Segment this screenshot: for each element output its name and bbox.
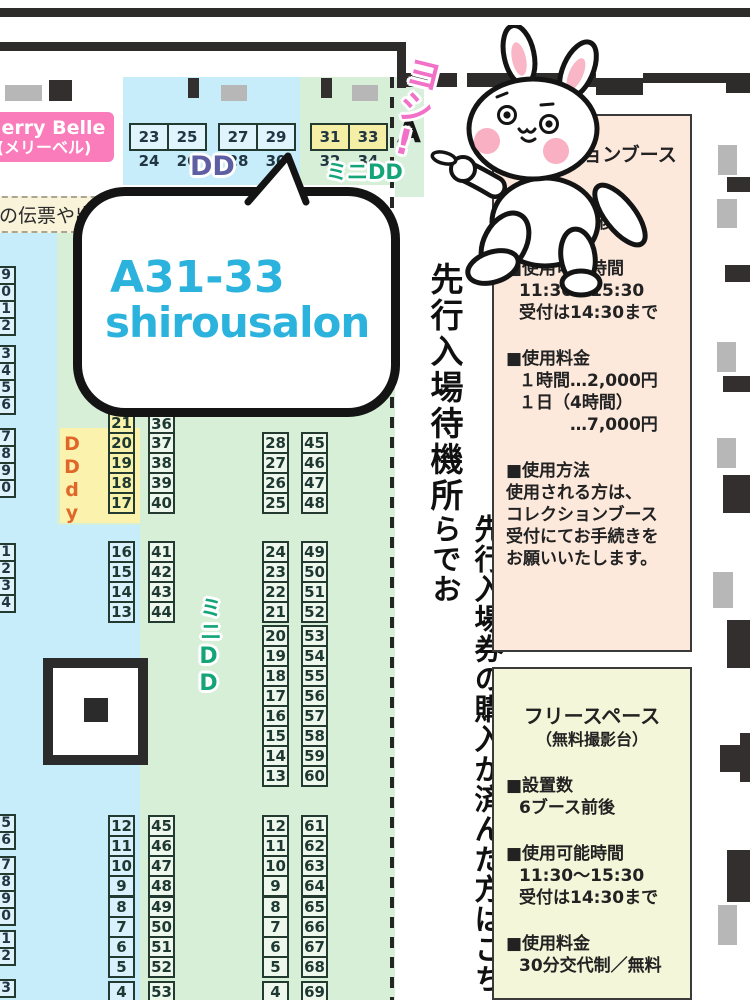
booth-cell: 10 <box>264 857 287 875</box>
edge-booth-column: 12 <box>0 930 16 966</box>
pillar-block <box>723 475 750 513</box>
booth-strip: 27 2829 30 <box>218 123 296 151</box>
booth-cell: 5 <box>110 956 133 976</box>
booth-cell: 53 <box>303 627 326 645</box>
floor-pillar <box>43 658 148 765</box>
panel-section: ■使用可能時間11:30～15:30受付は14:30まで <box>494 843 690 909</box>
booth-column: 45464748 <box>301 432 328 514</box>
booth-cell: 4 <box>110 983 133 1000</box>
booth-strip: 23 2425 26 <box>129 123 207 151</box>
booth-cell: 59 <box>303 747 326 765</box>
booth-column: 69 <box>301 981 328 1000</box>
panel-section-line: お願いいたします。 <box>506 548 680 570</box>
booth-column: 53545556 <box>301 625 328 707</box>
booth-cell: 7 <box>0 858 14 873</box>
edge-booth-column: 3 <box>0 979 16 998</box>
booth-column: 8765 <box>108 896 135 978</box>
panel-section-heading: ■使用可能時間 <box>506 843 680 865</box>
booth-cell: 50 <box>303 561 326 581</box>
booth-cell: 36 <box>150 415 173 433</box>
panel-section: ■設置数6ブース前後 <box>494 775 690 819</box>
booth-cell: 50 <box>150 916 173 936</box>
booth-cell: 22 <box>264 583 287 601</box>
booth-cell: 6 <box>264 938 287 956</box>
booth-cell: 43 <box>150 583 173 601</box>
rabbit-illustration <box>425 25 660 300</box>
pillar-block <box>723 376 750 392</box>
booth-cell: 24 <box>264 543 287 561</box>
booth-column: 8765 <box>262 896 289 978</box>
booth-cell: 6 <box>110 938 133 956</box>
panel-section: ■使用料金１時間…2,000円１日（4時間） …7,000円 <box>494 348 690 436</box>
booth-cell: 45 <box>303 434 326 452</box>
booth-cell: 62 <box>303 835 326 855</box>
ddy-zone-label: DDdy <box>61 433 83 525</box>
booth-cell: 21 <box>264 601 287 621</box>
booth-cell: 5 <box>264 956 287 976</box>
booth-cell: 9 <box>264 875 287 895</box>
booth-cell: 56 <box>303 685 326 705</box>
booth-cell: 47 <box>303 474 326 492</box>
panel-section-heading: ■使用料金 <box>506 933 680 955</box>
bubble-booth-number: A31-33 <box>110 252 285 303</box>
booth-cell: 4 <box>0 362 14 379</box>
panel-section-line: 30分交代制／無料 <box>506 955 680 977</box>
booth-cell: 41 <box>150 543 173 561</box>
wall-top-2 <box>0 42 406 51</box>
booth-cell: 4 <box>264 983 287 1000</box>
edge-booth-column: 1234 <box>0 543 16 613</box>
booth-column: 4 <box>262 981 289 1000</box>
panel-section-line: １時間…2,000円 <box>506 370 680 392</box>
table-block <box>717 199 737 228</box>
booth-cell: 51 <box>150 938 173 956</box>
booth-cell: 16 <box>110 543 133 561</box>
rabbit-mascot <box>425 25 660 304</box>
booth-cell: 18 <box>110 474 133 492</box>
booth-column: 49505152 <box>148 896 175 978</box>
booth-cell: 0 <box>0 479 14 496</box>
bubble-circle-name: shirousalon <box>105 298 369 347</box>
booth-cell: 25 26 <box>167 125 205 149</box>
merry-belle-name: Merry Belle <box>0 118 114 139</box>
booth-cell: 4 <box>0 594 14 611</box>
merry-belle-reading: (メリーベル) <box>0 139 114 157</box>
booth-cell: 52 <box>150 956 173 976</box>
venue-map-page: の伝票や出展 Merry Belle (メリーベル) DD ミニDD A ミニD… <box>0 0 750 1000</box>
pillar-block <box>49 80 72 101</box>
free-space-panel-title: フリースペース <box>494 705 690 727</box>
booth-cell: 52 <box>303 601 326 621</box>
mini-dd-vertical-label: ミニDD <box>192 596 224 698</box>
table-block <box>717 342 736 372</box>
booth-column: 16151413 <box>108 541 135 623</box>
speech-bubble-tail <box>240 150 316 212</box>
booth-cell: 48 <box>150 875 173 895</box>
booth-cell: 15 <box>110 561 133 581</box>
booth-cell: 63 <box>303 857 326 875</box>
booth-column: 4 <box>108 981 135 1000</box>
booth-column: 53 <box>148 981 175 1000</box>
booth-cell: 39 <box>150 474 173 492</box>
booth-cell: 3 <box>0 577 14 594</box>
table-block <box>5 85 42 101</box>
booth-cell: 2 <box>0 947 14 964</box>
booth-column: 65666768 <box>301 896 328 978</box>
booth-column: 20191817 <box>262 625 289 707</box>
booth-cell: 14 <box>110 583 133 601</box>
booth-column: 61626364 <box>301 815 328 897</box>
booth-column: 24232221 <box>262 541 289 623</box>
booth-cell: 61 <box>303 817 326 835</box>
pillar-block <box>720 745 740 772</box>
panel-section-heading: ■使用方法 <box>506 460 680 482</box>
booth-cell: 65 <box>303 898 326 916</box>
edge-booth-column: 56 <box>0 814 16 850</box>
booth-cell: 5 <box>0 379 14 396</box>
free-space-panel: フリースペース （無料撮影台） ■設置数6ブース前後■使用可能時間11:30～1… <box>492 667 692 1000</box>
pillar-block <box>188 78 199 98</box>
booth-cell: 20 <box>110 434 133 452</box>
booth-cell: 6 <box>0 831 14 848</box>
dd-zone-label: DD <box>190 151 235 182</box>
booth-cell: 44 <box>150 601 173 621</box>
panel-section-line: 6ブース前後 <box>506 797 680 819</box>
booth-cell: 8 <box>0 445 14 462</box>
booth-cell: 1 <box>0 300 14 317</box>
panel-section-line: 受付にてお手続きを <box>506 526 680 548</box>
booth-column: 37383940 <box>148 432 175 514</box>
booth-cell: 68 <box>303 956 326 976</box>
booth-column: 1211109 <box>108 815 135 897</box>
booth-cell: 15 <box>264 725 287 745</box>
booth-cell: 48 <box>303 492 326 512</box>
table-block <box>717 438 736 468</box>
booth-cell: 45 <box>150 817 173 835</box>
merry-belle-sign: Merry Belle (メリーベル) <box>0 112 114 162</box>
panel-section-line: 受付は14:30まで <box>506 887 680 909</box>
booth-cell: 27 <box>264 452 287 472</box>
table-block <box>718 905 737 945</box>
panel-section-line: コレクションブース <box>506 504 680 526</box>
table-block <box>718 145 737 175</box>
edge-booth-column: 7890 <box>0 428 16 498</box>
panel-section: ■使用方法使用される方は、コレクションブース受付にてお手続きをお願いいたします。 <box>494 460 690 570</box>
booth-cell: 8 <box>110 898 133 916</box>
booth-cell: 3 <box>0 347 14 362</box>
panel-section-line: …7,000円 <box>506 414 680 436</box>
free-space-panel-subtitle: （無料撮影台） <box>494 729 690 751</box>
pillar-block <box>740 733 750 782</box>
panel-section-heading: ■使用料金 <box>506 348 680 370</box>
edge-booth-column: 7890 <box>0 856 16 926</box>
booth-cell: 49 <box>150 898 173 916</box>
booth-cell: 51 <box>303 583 326 601</box>
booth-cell: 55 <box>303 667 326 685</box>
booth-cell: 9 <box>0 462 14 479</box>
booth-cell: 7 <box>0 430 14 445</box>
pillar-block <box>727 177 750 192</box>
booth-cell: 1 <box>0 545 14 560</box>
wall-seg-d <box>726 73 750 93</box>
booth-cell: 38 <box>150 452 173 472</box>
booth-cell: 54 <box>303 645 326 665</box>
booth-column: 28272625 <box>262 432 289 514</box>
booth-column: 1211109 <box>262 815 289 897</box>
booth-cell: 29 30 <box>256 125 294 149</box>
booth-cell: 0 <box>0 907 14 924</box>
booth-cell: 7 <box>110 916 133 936</box>
booth-cell: 1 <box>0 932 14 947</box>
booth-cell: 40 <box>150 492 173 512</box>
booth-cell: 58 <box>303 725 326 745</box>
booth-cell: 8 <box>264 898 287 916</box>
booth-column: 57585960 <box>301 705 328 787</box>
booth-cell: 7 <box>264 916 287 936</box>
panel-section-line: 使用される方は、 <box>506 482 680 504</box>
booth-cell: 64 <box>303 875 326 895</box>
pillar-block <box>727 850 750 902</box>
panel-section-line: 11:30～15:30 <box>506 865 680 887</box>
booth-cell: 3 <box>0 981 14 996</box>
booth-cell: 14 <box>264 747 287 765</box>
booth-cell: 27 28 <box>220 125 256 149</box>
booth-column: 20191817 <box>108 432 135 514</box>
booth-cell: 46 <box>150 835 173 855</box>
booth-cell: 5 <box>0 816 14 831</box>
booth-cell: 16 <box>264 707 287 725</box>
booth-cell: 31 32 <box>312 125 348 149</box>
pillar-block <box>321 78 332 98</box>
booth-cell: 60 <box>303 765 326 785</box>
booth-cell: 42 <box>150 561 173 581</box>
edge-booth-column: 9012 <box>0 266 16 336</box>
booth-cell: 6 <box>0 396 14 413</box>
booth-cell: 0 <box>0 283 14 300</box>
wall-top-1 <box>0 8 750 17</box>
edge-booth-column: 3456 <box>0 345 16 415</box>
table-block <box>221 85 247 101</box>
booth-cell: 23 24 <box>131 125 167 149</box>
table-block <box>352 85 378 101</box>
booth-cell: 17 <box>264 685 287 705</box>
booth-cell: 69 <box>303 983 326 1000</box>
booth-cell: 53 <box>150 983 173 1000</box>
booth-cell: 20 <box>264 627 287 645</box>
booth-cell: 57 <box>303 707 326 725</box>
panel-section-line: 受付は14:30まで <box>506 302 680 324</box>
booth-cell: 25 <box>264 492 287 512</box>
booth-cell: 12 <box>110 817 133 835</box>
booth-cell: 28 <box>264 434 287 452</box>
booth-column: 49505152 <box>301 541 328 623</box>
booth-cell: 23 <box>264 561 287 581</box>
booth-cell: 2 <box>0 560 14 577</box>
pillar-block <box>725 265 750 282</box>
booth-column: 41424344 <box>148 541 175 623</box>
booth-cell: 9 <box>0 890 14 907</box>
booth-cell: 17 <box>110 492 133 512</box>
booth-cell: 18 <box>264 667 287 685</box>
booth-column: 16151413 <box>262 705 289 787</box>
booth-cell: 19 <box>110 452 133 472</box>
panel-section-line: １日（4時間） <box>506 392 680 414</box>
panel-section: ■使用料金30分交代制／無料 <box>494 933 690 977</box>
booth-cell: 19 <box>264 645 287 665</box>
booth-cell: 2 <box>0 317 14 334</box>
booth-strip: 31 3233 34 <box>310 123 388 151</box>
panel-section-heading: ■設置数 <box>506 775 680 797</box>
booth-cell: 26 <box>264 474 287 492</box>
booth-cell: 8 <box>0 873 14 890</box>
booth-cell: 33 34 <box>348 125 386 149</box>
pillar-block <box>727 620 750 668</box>
booth-column: 45464748 <box>148 815 175 897</box>
booth-cell: 67 <box>303 938 326 956</box>
booth-cell: 11 <box>110 835 133 855</box>
booth-cell: 11 <box>264 835 287 855</box>
booth-cell: 46 <box>303 452 326 472</box>
booth-cell: 13 <box>264 765 287 785</box>
pillar-core <box>84 698 108 722</box>
booth-cell: 13 <box>110 601 133 621</box>
table-block <box>713 572 733 608</box>
booth-cell: 12 <box>264 817 287 835</box>
booth-cell: 47 <box>150 857 173 875</box>
booth-cell: 9 <box>0 268 14 283</box>
booth-cell: 66 <box>303 916 326 936</box>
booth-cell: 10 <box>110 857 133 875</box>
free-space-panel-sections: ■設置数6ブース前後■使用可能時間11:30～15:30受付は14:30まで■使… <box>494 775 690 977</box>
booth-cell: 49 <box>303 543 326 561</box>
booth-cell: 37 <box>150 434 173 452</box>
booth-cell: 9 <box>110 875 133 895</box>
